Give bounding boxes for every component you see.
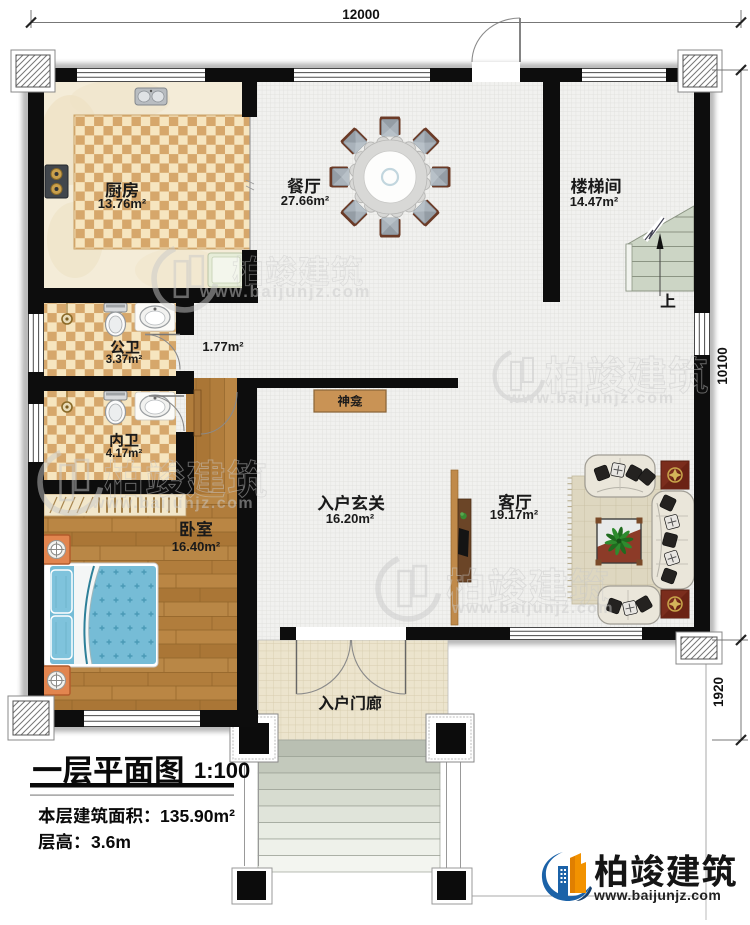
svg-text:1920: 1920 xyxy=(711,677,726,707)
svg-text:10100: 10100 xyxy=(715,347,730,385)
svg-text:www.baijunjz.com: www.baijunjz.com xyxy=(451,600,614,617)
svg-text:14.47m²: 14.47m² xyxy=(570,194,619,209)
svg-text:www.baijunjz.com: www.baijunjz.com xyxy=(91,495,254,512)
svg-text:1:100: 1:100 xyxy=(194,758,250,783)
svg-text:13.76m²: 13.76m² xyxy=(98,196,147,211)
svg-text:www.baijunjz.com: www.baijunjz.com xyxy=(507,390,675,407)
svg-text:www.baijunjz.com: www.baijunjz.com xyxy=(199,283,371,301)
svg-text:16.20m²: 16.20m² xyxy=(326,511,375,526)
svg-text:12000: 12000 xyxy=(342,7,380,22)
svg-text:19.17m²: 19.17m² xyxy=(490,507,539,522)
svg-text:135.90m²: 135.90m² xyxy=(160,806,235,826)
svg-text:www.baijunjz.com: www.baijunjz.com xyxy=(593,887,721,903)
svg-text:3.6m: 3.6m xyxy=(91,832,131,852)
svg-text:1.77m²: 1.77m² xyxy=(202,339,244,354)
svg-text:3.37m²: 3.37m² xyxy=(106,354,143,366)
svg-text:27.66m²: 27.66m² xyxy=(281,193,330,208)
svg-text:4.17m²: 4.17m² xyxy=(106,448,143,460)
svg-text:16.40m²: 16.40m² xyxy=(172,539,221,554)
